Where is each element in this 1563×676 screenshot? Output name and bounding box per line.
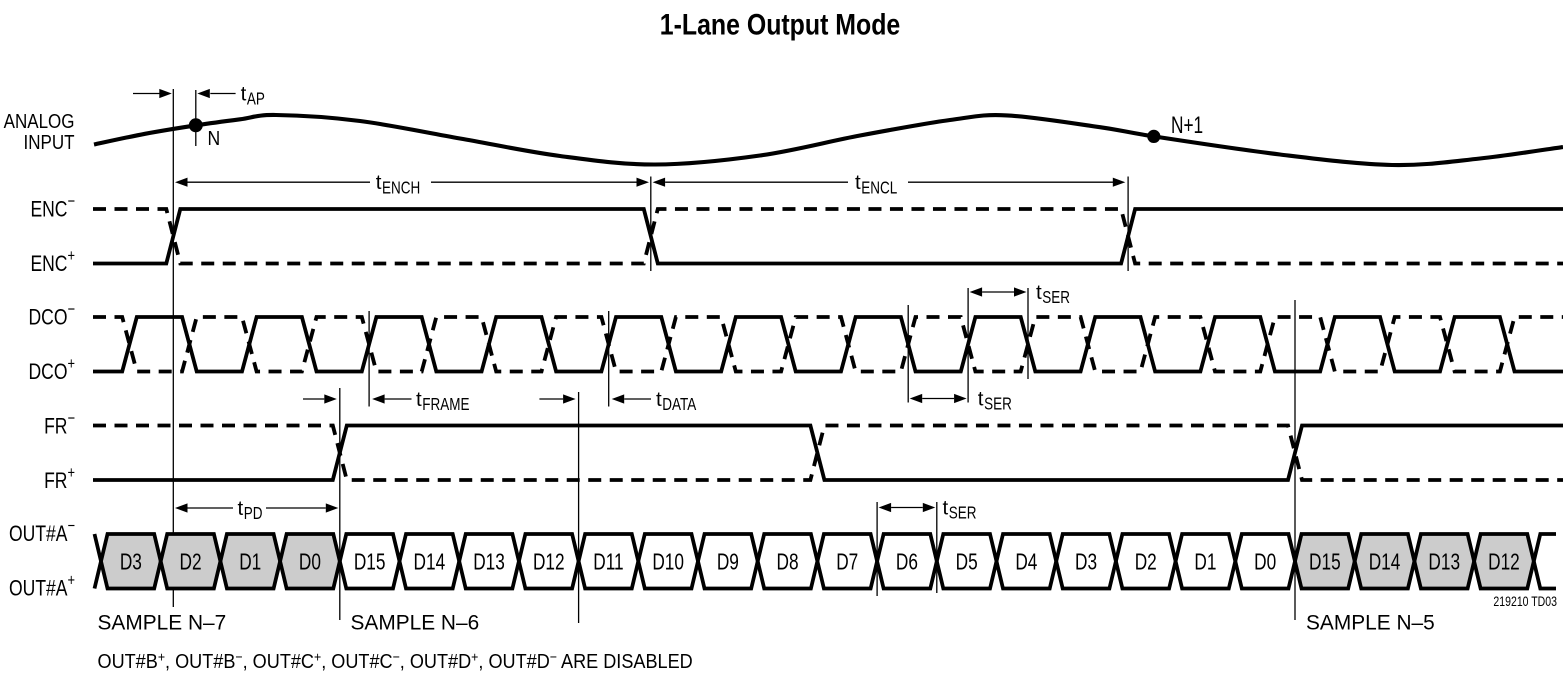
svg-text:D8: D8 — [777, 550, 799, 575]
svg-text:AP: AP — [247, 90, 265, 109]
svg-text:SER: SER — [984, 395, 1012, 414]
svg-text:t: t — [241, 82, 247, 105]
svg-text:SAMPLE N–7: SAMPLE N–7 — [98, 611, 227, 634]
svg-text:D15: D15 — [1309, 550, 1341, 575]
svg-text:219210 TD03: 219210 TD03 — [1493, 594, 1557, 610]
svg-text:t: t — [656, 388, 662, 411]
svg-text:SAMPLE N–5: SAMPLE N–5 — [1306, 611, 1435, 634]
svg-text:t: t — [943, 496, 949, 519]
svg-text:D12: D12 — [1488, 550, 1520, 575]
svg-text:D13: D13 — [473, 550, 505, 575]
svg-text:SAMPLE N–6: SAMPLE N–6 — [350, 611, 479, 634]
svg-text:D15: D15 — [354, 550, 386, 575]
svg-text:D13: D13 — [1428, 550, 1460, 575]
svg-text:t: t — [238, 497, 244, 520]
svg-text:D3: D3 — [1075, 550, 1097, 575]
svg-text:DATA: DATA — [662, 395, 696, 414]
svg-text:D6: D6 — [896, 550, 918, 575]
svg-text:OUT#A+: OUT#A+ — [9, 572, 75, 601]
svg-text:D1: D1 — [239, 550, 261, 575]
svg-text:ANALOG: ANALOG — [4, 110, 75, 133]
svg-text:D2: D2 — [180, 550, 202, 575]
svg-text:INPUT: INPUT — [24, 131, 75, 154]
svg-text:D10: D10 — [652, 550, 684, 575]
svg-text:t: t — [855, 171, 861, 194]
svg-text:1-Lane Output Mode: 1-Lane Output Mode — [660, 7, 901, 41]
svg-text:PD: PD — [244, 504, 263, 523]
svg-text:t: t — [376, 171, 382, 194]
svg-text:D1: D1 — [1194, 550, 1216, 575]
svg-text:t: t — [416, 388, 422, 411]
svg-text:D7: D7 — [836, 550, 858, 575]
svg-text:t: t — [978, 387, 984, 410]
svg-text:D14: D14 — [414, 550, 446, 575]
svg-text:D4: D4 — [1015, 550, 1037, 575]
svg-text:D12: D12 — [533, 550, 565, 575]
svg-text:ENCH: ENCH — [382, 179, 420, 198]
svg-text:t: t — [1036, 281, 1042, 304]
svg-text:FRAME: FRAME — [422, 395, 469, 414]
svg-text:N+1: N+1 — [1171, 112, 1203, 138]
svg-text:SER: SER — [949, 504, 977, 523]
svg-text:D9: D9 — [717, 550, 739, 575]
svg-text:D11: D11 — [593, 550, 623, 575]
svg-text:D14: D14 — [1369, 550, 1401, 575]
svg-text:SER: SER — [1042, 288, 1070, 307]
svg-text:ENCL: ENCL — [861, 179, 897, 198]
svg-text:D0: D0 — [299, 550, 321, 575]
svg-text:N: N — [208, 127, 221, 149]
svg-text:D5: D5 — [956, 550, 978, 575]
svg-text:D0: D0 — [1254, 550, 1276, 575]
svg-text:D2: D2 — [1135, 550, 1157, 575]
svg-text:OUT#A−: OUT#A− — [9, 518, 75, 547]
svg-text:D3: D3 — [120, 550, 142, 575]
